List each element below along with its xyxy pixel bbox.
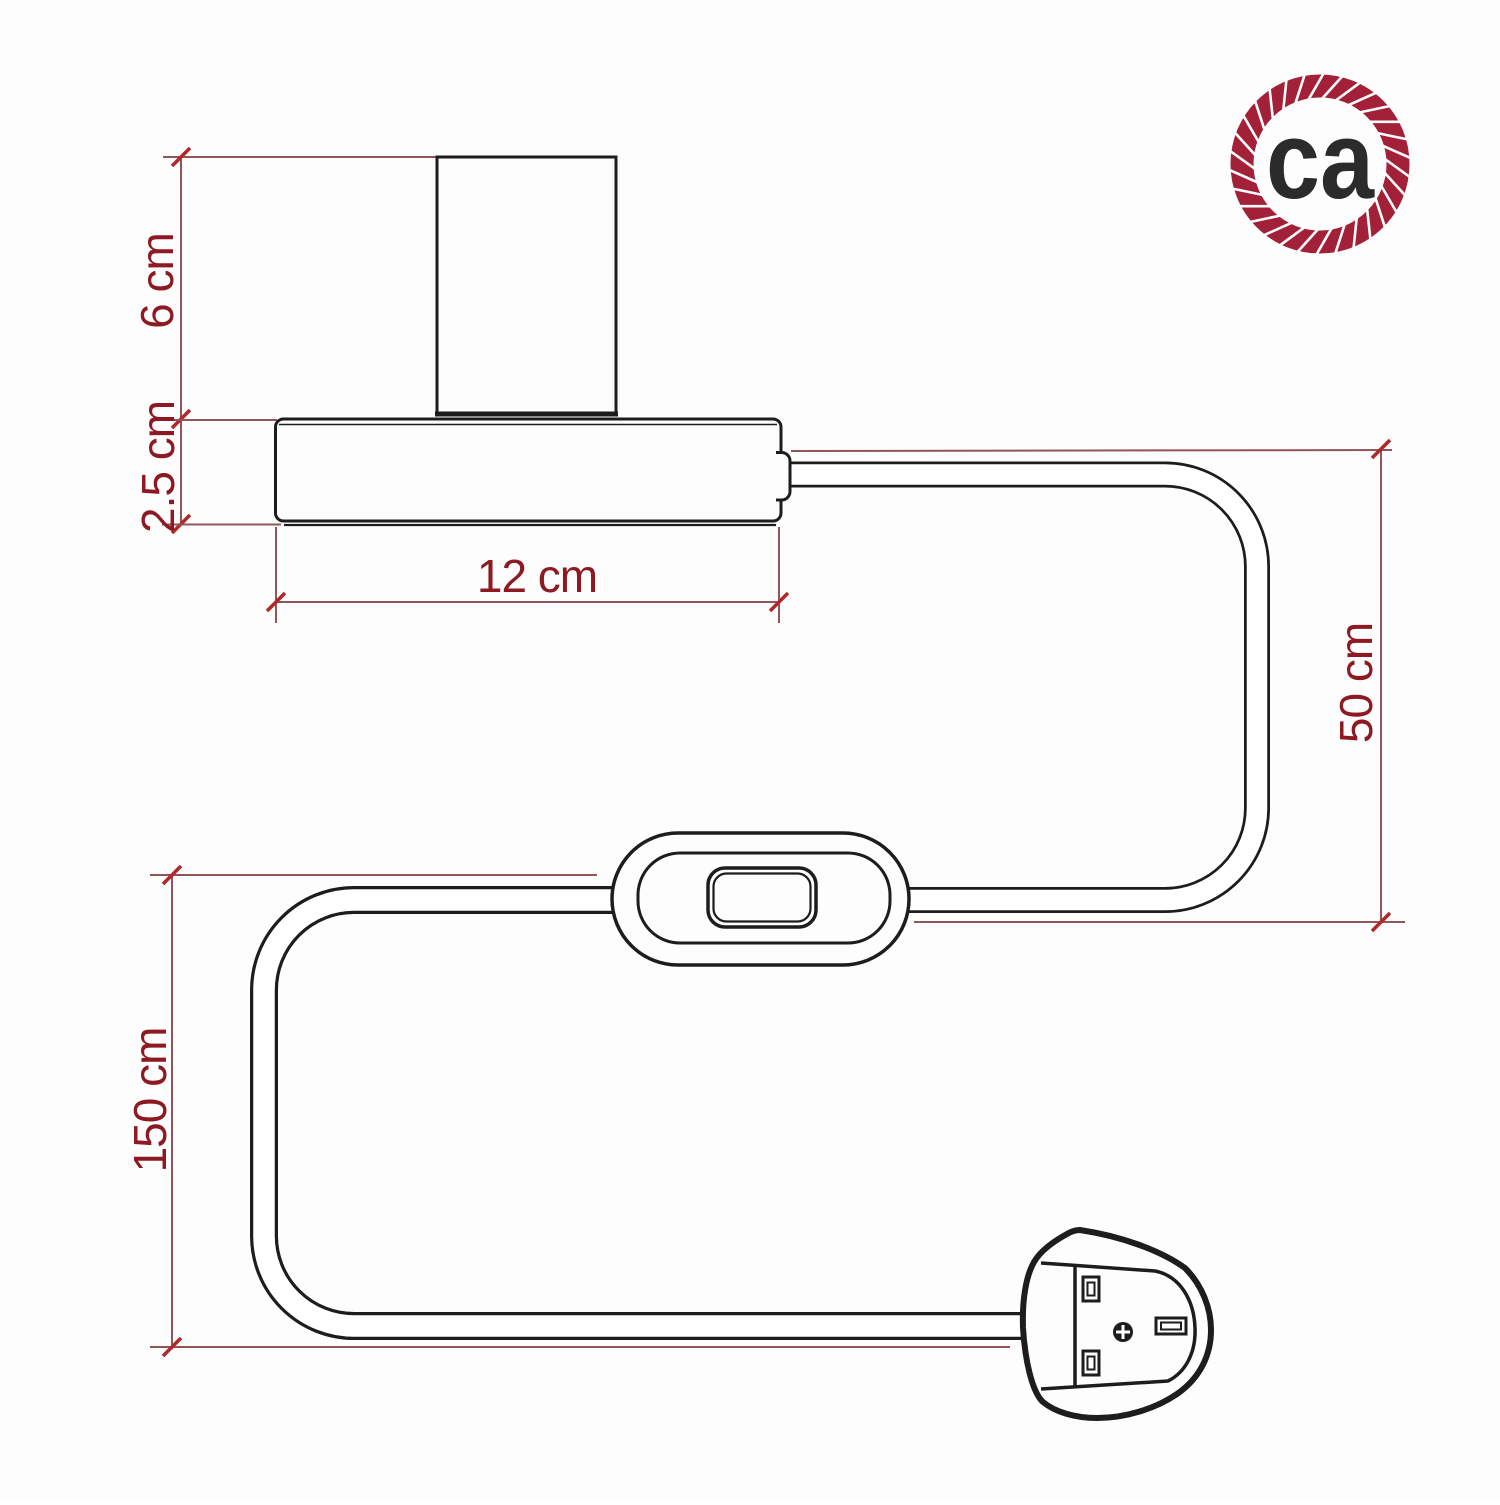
svg-text:ca: ca <box>1266 99 1375 222</box>
svg-text:2.5 cm: 2.5 cm <box>132 401 184 533</box>
svg-text:50 cm: 50 cm <box>1330 623 1382 743</box>
svg-text:12 cm: 12 cm <box>477 550 597 602</box>
svg-text:6 cm: 6 cm <box>131 233 183 329</box>
svg-text:150 cm: 150 cm <box>124 1028 176 1173</box>
